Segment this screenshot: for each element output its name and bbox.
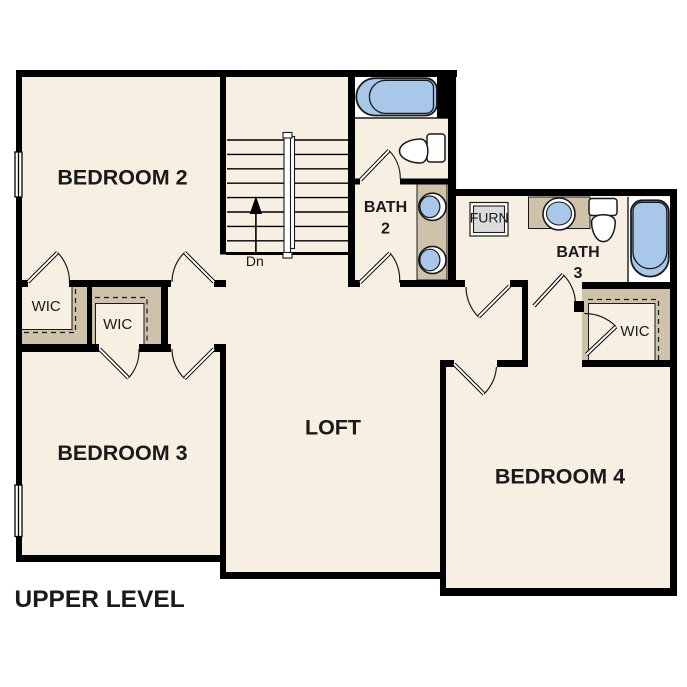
svg-text:BEDROOM 3: BEDROOM 3 (57, 441, 187, 465)
svg-text:3: 3 (574, 265, 583, 282)
svg-text:BATH: BATH (364, 199, 407, 216)
svg-text:Dn: Dn (246, 253, 264, 269)
svg-text:WIC: WIC (32, 298, 61, 315)
svg-text:UPPER LEVEL: UPPER LEVEL (15, 586, 185, 613)
svg-text:BEDROOM 4: BEDROOM 4 (495, 465, 625, 489)
svg-text:2: 2 (381, 221, 390, 238)
svg-text:FURN: FURN (470, 210, 509, 226)
svg-text:BEDROOM 2: BEDROOM 2 (57, 166, 187, 190)
svg-text:BATH: BATH (556, 244, 599, 261)
svg-text:WIC: WIC (103, 316, 132, 333)
svg-text:LOFT: LOFT (305, 416, 361, 440)
svg-text:WIC: WIC (620, 323, 649, 340)
